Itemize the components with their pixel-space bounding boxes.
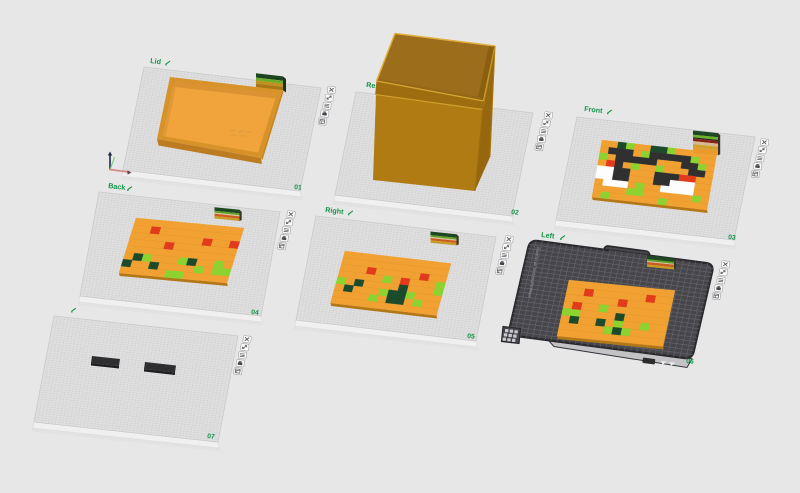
svg-text:02: 02 <box>511 209 520 217</box>
svg-text:06: 06 <box>686 358 695 366</box>
svg-text:Lid: Lid <box>150 56 162 66</box>
svg-text:Left: Left <box>541 230 556 241</box>
svg-text:04: 04 <box>251 309 260 317</box>
svg-text:01: 01 <box>294 184 303 192</box>
svg-text:05: 05 <box>467 333 476 341</box>
svg-text:07: 07 <box>207 433 216 441</box>
svg-text:03: 03 <box>728 234 737 242</box>
